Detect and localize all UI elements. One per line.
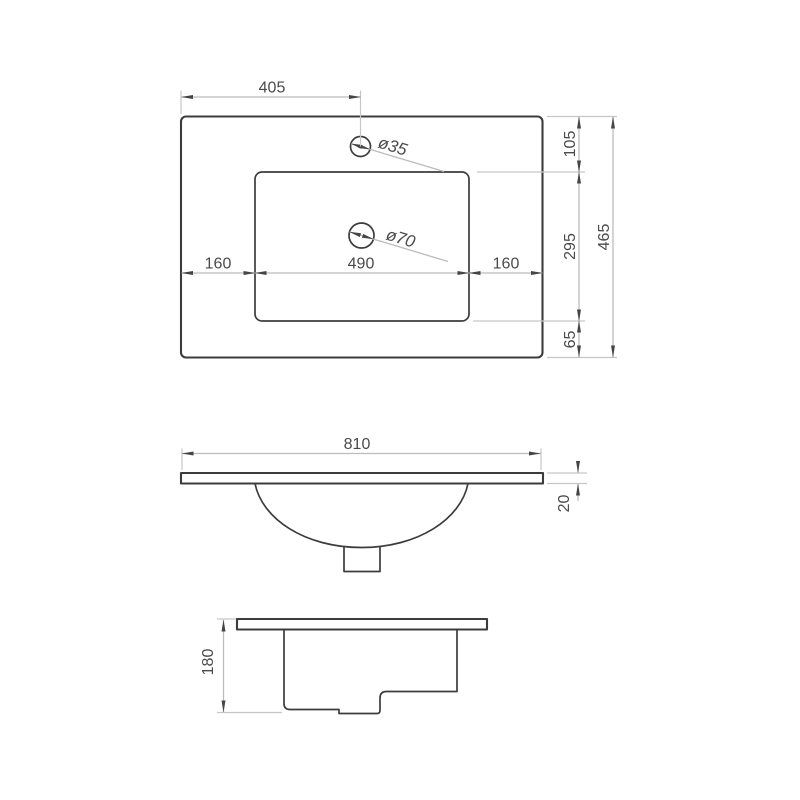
diameter-line — [350, 232, 374, 239]
front-view: 810 20 — [181, 436, 587, 572]
dim-faucet-offset: 405 — [181, 80, 361, 147]
dim-total-height: 180 — [200, 619, 282, 713]
dim-label-margin-top: 105 — [562, 131, 579, 158]
dim-label-basin-width: 490 — [348, 256, 375, 273]
drawing-canvas: ø35 ø70 405 160 490 160 — [0, 0, 800, 800]
dim-label-total-width: 810 — [344, 436, 371, 453]
dim-depth-chain: 105 295 65 465 — [473, 117, 617, 358]
basin-section-profile — [284, 630, 457, 714]
dim-label-faucet-dia: ø35 — [376, 133, 410, 160]
dim-label-total-height: 180 — [200, 649, 217, 676]
side-view: 180 — [200, 619, 487, 714]
dim-label-margin-left: 160 — [205, 256, 232, 273]
drain-outlet — [344, 547, 380, 572]
basin-outline — [255, 172, 469, 321]
dim-label-margin-right: 160 — [493, 256, 520, 273]
dim-top-thickness: 20 — [547, 461, 587, 512]
countertop-slab — [237, 619, 487, 630]
dim-label-total-depth: 465 — [596, 224, 613, 251]
dim-label-faucet-offset: 405 — [259, 80, 286, 97]
bowl-profile — [255, 484, 468, 548]
dim-faucet-hole-dia: ø35 — [351, 133, 444, 172]
top-view: ø35 ø70 405 160 490 160 — [181, 80, 617, 358]
countertop-slab — [181, 473, 543, 484]
dim-label-top-thickness: 20 — [556, 495, 573, 513]
dim-label-basin-depth: 295 — [562, 233, 579, 260]
dim-width-chain: 160 490 160 — [182, 256, 543, 274]
dim-label-margin-bottom: 65 — [562, 331, 579, 349]
dim-total-width: 810 — [182, 436, 541, 470]
dim-label-drain-dia: ø70 — [384, 225, 418, 252]
